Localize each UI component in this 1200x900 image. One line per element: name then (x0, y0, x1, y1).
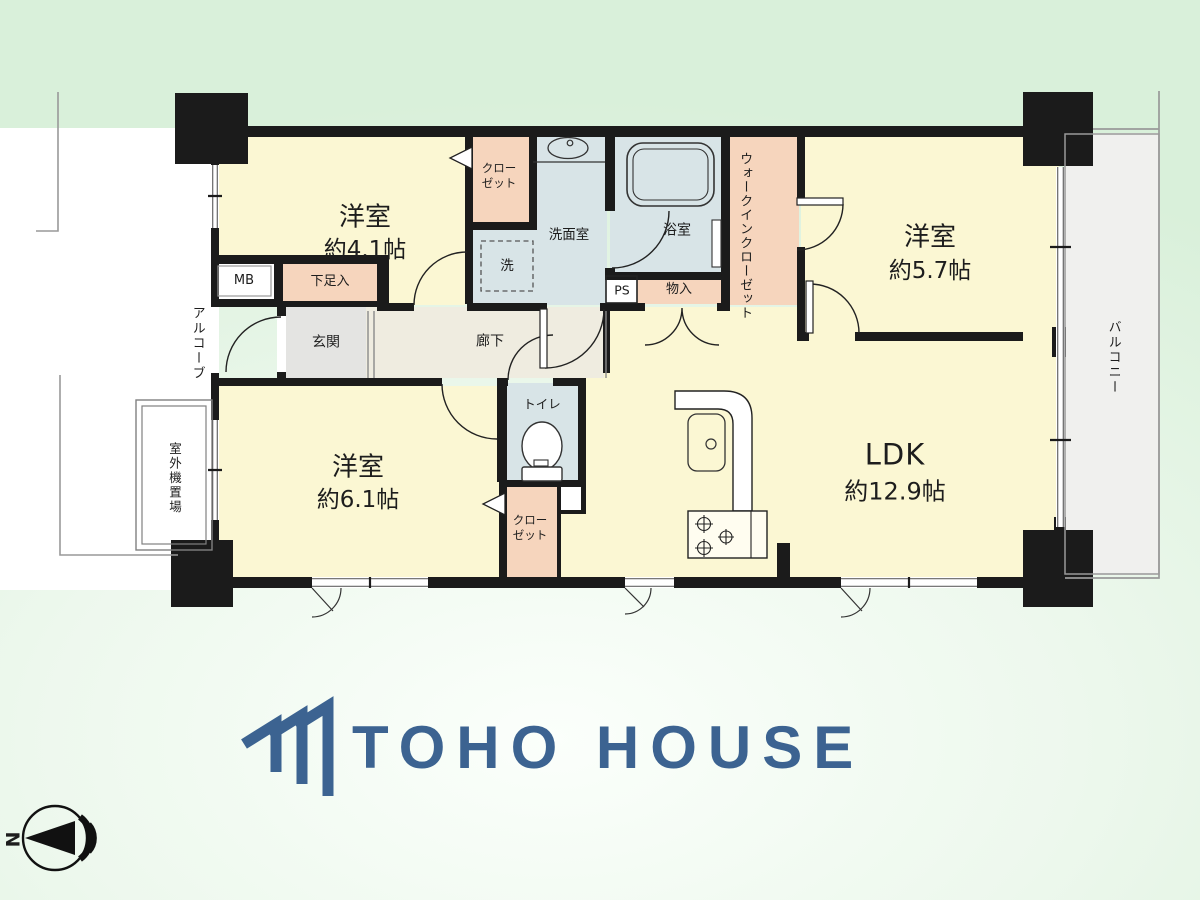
storage-small-label: 物入 (666, 282, 692, 298)
window-swing (841, 588, 870, 617)
bath-ledge (712, 220, 721, 267)
balcony-label: バルコニー (1105, 312, 1121, 402)
closet-upper-label: クロー ゼット (482, 161, 517, 191)
closet-lower-line1: クロー (513, 513, 548, 527)
bedroom-57-size: 約5.7帖 (889, 258, 972, 286)
compass-north-label: N (3, 831, 26, 847)
kitchen-stove (688, 511, 767, 558)
bedroom41-door-arc (414, 252, 467, 305)
toilet-label: トイレ (523, 397, 561, 412)
bedroom-61-size: 約6.1帖 (317, 487, 400, 515)
compass-icon (23, 806, 94, 870)
bathroom-label: 浴室 (663, 223, 691, 240)
kitchen-sink-drain (706, 439, 716, 449)
washroom-door-leaf (540, 309, 547, 368)
entrance-door-arc (226, 317, 281, 372)
bedroom57-door-leaf (806, 281, 813, 333)
outdoor-unit-label: 室外機置場 (167, 428, 182, 528)
vanity-faucet (567, 140, 573, 146)
entrance-label: 玄関 (312, 335, 340, 352)
washer-label: 洗 (500, 258, 514, 274)
window-lines (312, 579, 977, 587)
toilet-handle (534, 460, 548, 466)
window-swing (625, 588, 651, 614)
bedroom-57-label: 洋室 (904, 222, 956, 253)
meter-box-label: MB (234, 273, 254, 289)
bedroom57-door-arc (810, 284, 859, 333)
alcove-label: アルコーブ (189, 303, 205, 383)
hallway-label: 廊下 (476, 334, 504, 351)
floorplan-image: 洋室 約4.1帖 洋室 約5.7帖 洋室 約6.1帖 LDK 約12.9帖 クロ… (0, 0, 1200, 900)
closet-upper-line1: クロー (482, 161, 517, 175)
wic-door-arc (797, 204, 843, 250)
bedroom-61-label: 洋室 (332, 452, 384, 483)
bathtub-inner (633, 149, 708, 200)
toilet-tank (522, 467, 562, 481)
kitchen-counter (675, 391, 752, 511)
ldk-size: 約12.9帖 (844, 478, 945, 507)
window-swing (312, 588, 341, 617)
storage-double-door-arcs (645, 308, 719, 345)
closet-lower-label: クロー ゼット (513, 513, 548, 543)
bedroom-41-size: 約4.1帖 (324, 237, 407, 265)
bathtub-outer (627, 143, 714, 206)
closet-upper-line2: ゼット (482, 176, 517, 190)
washroom-door-arc (545, 309, 604, 368)
bathroom-door-arc (612, 211, 669, 268)
closet-front-marker (483, 493, 505, 515)
shoe-box-label: 下足入 (310, 274, 349, 290)
wic-door-leaf (797, 198, 843, 205)
company-logo-text: TOHO HOUSE (352, 712, 864, 784)
closet-lower-line2: ゼット (513, 528, 548, 542)
pipe-space-label: PS (614, 283, 629, 298)
closet-front-marker (450, 147, 472, 169)
ldk-label: LDK (865, 438, 926, 473)
company-logo-icon (244, 706, 328, 796)
washroom-label: 洗面室 (549, 227, 590, 243)
alcove-outline (36, 92, 178, 555)
walk-in-closet-label: ウォークインクローゼット (734, 152, 754, 240)
bedroom61-door-arc (442, 384, 497, 439)
bedroom-41-label: 洋室 (339, 202, 391, 233)
